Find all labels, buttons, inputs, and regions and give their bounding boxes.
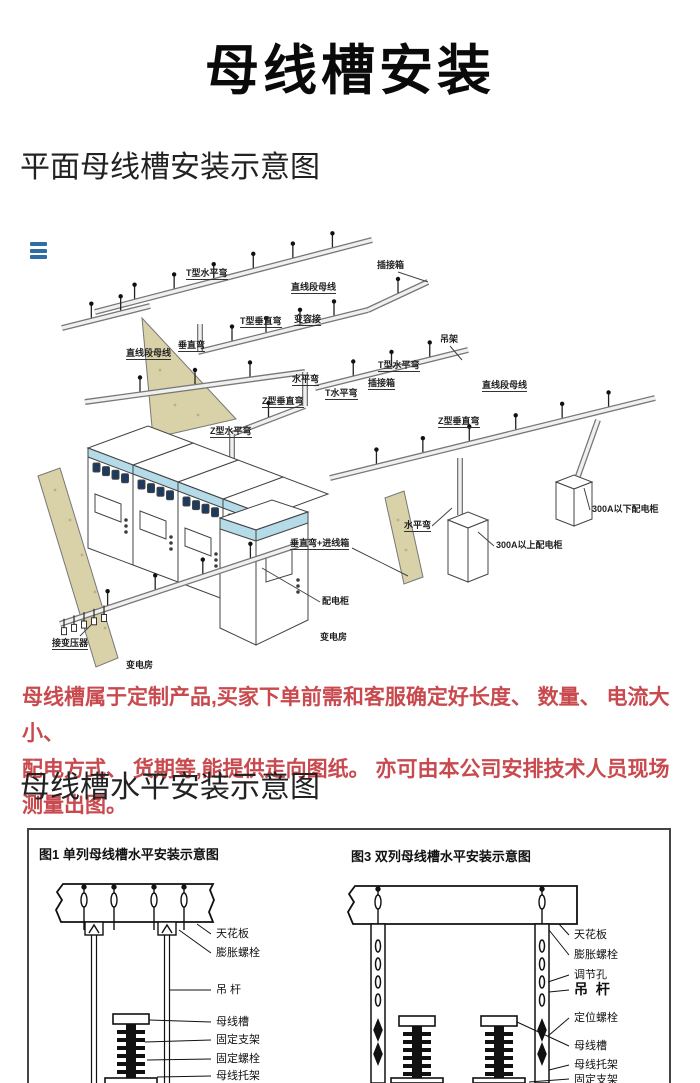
diagram-label: 300A以上配电柜 xyxy=(496,540,563,550)
plane-installation-diagram: T型水平弯直线段母线插接箱T型垂直弯变容接垂直弯直线段母线水平弯T水平弯Z型垂直… xyxy=(0,220,700,680)
diagram-label: 调节孔 xyxy=(574,969,607,981)
diagram-label: 插接箱 xyxy=(368,378,395,390)
hanger-pin xyxy=(374,447,378,463)
diagram-label: 吊 杆 xyxy=(574,983,612,995)
diagram-label: Z型水平弯 xyxy=(210,426,252,438)
diagram-label: 垂直弯 xyxy=(178,340,205,352)
hanger-pin xyxy=(421,436,425,452)
diagram-label: 天花板 xyxy=(574,929,607,941)
diagram-label: 变容接 xyxy=(294,314,321,326)
hanger-brackets xyxy=(85,922,176,935)
hanger-pin xyxy=(396,277,400,293)
diagram-label: 水平弯 xyxy=(292,374,319,386)
figure1-caption: 图1 单列母线槽水平安装示意图 xyxy=(39,844,219,863)
diagram-label: 定位螺栓 xyxy=(574,1012,618,1024)
300a-lower-cabinet xyxy=(556,475,592,526)
hanger-pin xyxy=(560,402,564,418)
figure1-leaders xyxy=(145,924,211,1077)
hanger-pin xyxy=(153,573,157,589)
diagram-label: 吊架 xyxy=(440,334,458,344)
figure1-drawing xyxy=(56,884,214,1083)
diagram-label: 天花板 xyxy=(216,928,249,940)
diagram-label: Z型垂直弯 xyxy=(262,396,304,408)
diagram-label: 直线段母线 xyxy=(291,282,336,294)
diagram-label: 母线托架 xyxy=(574,1059,618,1071)
diagram-label: 变电房 xyxy=(320,632,347,642)
hanger-pin xyxy=(330,231,334,247)
leader-line xyxy=(398,272,428,282)
busway-assemblies xyxy=(391,1016,525,1083)
diagram-label: 膨胀螺栓 xyxy=(216,947,260,959)
diagram-label: T水平弯 xyxy=(325,388,358,400)
product-page: 母线槽安装 平面母线槽安装示意图 xyxy=(0,0,700,1083)
diagram-label: T型水平弯 xyxy=(378,360,420,372)
hanger-pin xyxy=(89,301,93,317)
page-title: 母线槽安装 xyxy=(0,26,700,105)
diagram-label: 膨胀螺栓 xyxy=(574,949,618,961)
diagram-label: 水平弯 xyxy=(404,520,431,532)
hanger-pin xyxy=(514,413,518,429)
hanger-pin xyxy=(351,359,355,375)
300a-upper-cabinet xyxy=(448,512,488,582)
hanger-pin xyxy=(172,272,176,288)
diagram-label: 固定支架 xyxy=(574,1074,618,1083)
busway-run xyxy=(198,299,368,352)
busway-run xyxy=(95,231,372,312)
section-heading-horizontal: 母线槽水平安装示意图 xyxy=(20,762,320,806)
busway-run xyxy=(330,390,655,478)
hanger-pin xyxy=(105,589,109,605)
hanger-pin xyxy=(132,283,136,299)
diagram-label: 垂直弯+进线箱 xyxy=(290,538,349,550)
hanger-pin xyxy=(248,360,252,376)
diagram-label: Z型垂直弯 xyxy=(438,416,480,428)
diagram-label: T型垂直弯 xyxy=(240,316,282,328)
hanger-pin xyxy=(291,241,295,257)
hamburger-menu-icon[interactable] xyxy=(30,242,48,262)
diagram-label: 配电柜 xyxy=(322,596,349,606)
channel-hangers xyxy=(371,924,549,1083)
hanger-pin xyxy=(428,340,432,356)
note-line-1: 母线槽属于定制产品,买家下单前需和客服确定好长度、 数量、 电流大小、 xyxy=(22,686,670,745)
diagram-label: T型水平弯 xyxy=(186,268,228,280)
section-heading-plane: 平面母线槽安装示意图 xyxy=(20,142,320,186)
figure3-caption: 图3 双列母线槽水平安装示意图 xyxy=(351,846,531,865)
diagram-label: 固定螺栓 xyxy=(216,1053,260,1065)
busway-run xyxy=(368,277,428,310)
diagram-label: 母线槽 xyxy=(216,1016,249,1028)
plane-diagram-art xyxy=(0,220,700,680)
diagram-label: 吊 杆 xyxy=(216,984,241,996)
busway-assembly xyxy=(105,1014,157,1083)
diagram-label: 插接箱 xyxy=(377,260,404,270)
diagram-label: 直线段母线 xyxy=(126,348,171,360)
diagram-label: 母线托架 xyxy=(216,1070,260,1082)
hanger-pin xyxy=(230,324,234,340)
diagram-label: 接变压器 xyxy=(52,638,88,650)
horizontal-diagram-art xyxy=(29,830,669,1083)
horizontal-installation-diagram: 图1 单列母线槽水平安装示意图 图3 双列母线槽水平安装示意图 天花板膨胀螺栓吊… xyxy=(27,828,671,1083)
hanger-pin xyxy=(332,299,336,315)
hanger-pin xyxy=(138,375,142,391)
diagram-label: 直线段母线 xyxy=(482,380,527,392)
hanger-pin xyxy=(251,252,255,268)
diagram-label: 母线槽 xyxy=(574,1040,607,1052)
diagram-label: 固定支架 xyxy=(216,1034,260,1046)
diagram-label: 300A以下配电柜 xyxy=(592,504,659,514)
ceiling-slab xyxy=(56,884,214,922)
figure3-drawing xyxy=(348,886,577,1083)
busway-elbow xyxy=(578,420,598,476)
tall-cabinet xyxy=(220,500,308,645)
diagram-label: 变电房 xyxy=(126,660,153,670)
hanger-pin xyxy=(606,390,610,406)
